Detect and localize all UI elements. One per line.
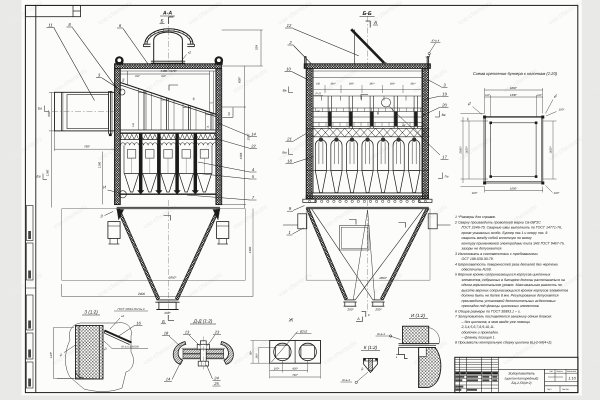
svg-text:х: х xyxy=(367,313,370,317)
svg-text:19: 19 xyxy=(442,92,447,97)
svg-text:– фланец позиция 1.: – фланец позиция 1. xyxy=(461,335,496,339)
svg-text:23: 23 xyxy=(214,330,220,335)
svg-text:ГОСТ 10519-78-П-Ь.З: ГОСТ 10519-78-П-Ь.З xyxy=(118,308,145,311)
svg-text:1160: 1160 xyxy=(97,161,101,168)
svg-text:100*: 100* xyxy=(554,191,561,195)
svg-text:А-А: А-А xyxy=(162,11,172,17)
svg-text:сварить между собой вплотную п: сварить между собой вплотную по всему xyxy=(462,236,532,240)
svg-text:16: 16 xyxy=(136,321,141,326)
svg-text:И: И xyxy=(103,185,106,190)
svg-text:2 Сварку производить проволоко: 2 Сварку производить проволокой марки Св… xyxy=(454,220,541,224)
svg-text:14: 14 xyxy=(166,377,171,382)
svg-text:1: 1 xyxy=(288,230,290,235)
svg-text:Лист: Лист xyxy=(547,388,552,391)
svg-text:1160: 1160 xyxy=(46,169,50,176)
svg-text:8 Произвести контрольную сборк: 8 Произвести контрольную сборку циклона … xyxy=(455,341,552,345)
svg-text:1650*: 1650* xyxy=(464,145,468,153)
svg-text:И (1:2): И (1:2) xyxy=(411,313,425,318)
svg-text:А: А xyxy=(356,317,360,321)
svg-text:кроме указанных особо. Бункер: кроме указанных особо. Бункер поз.1 и оп… xyxy=(462,231,548,235)
svg-text:элементов, собранных в батарею: элементов, собранных в батарею должны ра… xyxy=(462,278,565,282)
svg-text:400*: 400* xyxy=(292,367,298,370)
svg-text:280*: 280* xyxy=(134,75,141,78)
svg-text:обеспечить Rz50.: обеспечить Rz50. xyxy=(462,268,492,272)
svg-text:600*: 600* xyxy=(238,76,242,83)
svg-text:Листов: Листов xyxy=(562,388,570,391)
svg-text:Б-Б: Б-Б xyxy=(362,11,371,17)
svg-text:18: 18 xyxy=(287,159,292,164)
svg-text:оболочек и прокладок.: оболочек и прокладок. xyxy=(462,330,499,334)
svg-text:производить установкой дополни: производить установкой дополнительных ас… xyxy=(462,299,556,303)
svg-text:1850*: 1850* xyxy=(379,276,388,280)
svg-text:20: 20 xyxy=(441,103,447,108)
svg-text:З (1:2): З (1:2) xyxy=(84,310,98,315)
svg-text:100*: 100* xyxy=(559,108,566,112)
svg-text:21: 21 xyxy=(286,137,292,142)
svg-text:1402: 1402 xyxy=(248,246,252,253)
svg-text:200*: 200* xyxy=(346,308,354,312)
svg-text:190: 190 xyxy=(316,83,321,86)
svg-text:534: 534 xyxy=(254,45,258,50)
svg-text:10: 10 xyxy=(286,67,291,72)
svg-text:6 Общие размеры по ГОСТ 30893.: 6 Общие размеры по ГОСТ 30893.1 – s. xyxy=(455,309,521,313)
svg-text:280*: 280* xyxy=(160,75,167,78)
svg-text:200*: 200* xyxy=(374,308,382,312)
svg-text:Масштаб: Масштаб xyxy=(567,370,577,373)
svg-text:Ю-Ь.5-100/200: Ю-Ь.5-100/200 xyxy=(121,346,139,349)
svg-text:12: 12 xyxy=(287,23,292,28)
svg-text:1800*: 1800* xyxy=(510,86,518,90)
svg-text:Масса: Масса xyxy=(557,370,564,373)
svg-text:132: 132 xyxy=(132,122,135,127)
svg-text:22: 22 xyxy=(250,144,256,149)
svg-text:Ев: Ев xyxy=(38,107,42,111)
svg-text:200*: 200* xyxy=(163,311,171,315)
svg-text:Вв: Вв xyxy=(283,89,287,93)
svg-text:одном горизонтальном уровне. М: одном горизонтальном уровне. Максимальна… xyxy=(462,283,562,287)
svg-text:Ю-Ь.З: Ю-Ь.З xyxy=(377,333,385,336)
svg-text:54: 54 xyxy=(227,112,231,116)
svg-text:2567: 2567 xyxy=(247,133,251,141)
svg-text:ГОСТ 2246-70. Сварные швы выпо: ГОСТ 2246-70. Сварные швы выполнить по Г… xyxy=(462,226,562,230)
svg-text:2400: 2400 xyxy=(137,292,145,296)
svg-text:Ю-Ь.4: Ю-Ь.4 xyxy=(432,40,440,43)
svg-text:А: А xyxy=(373,20,377,25)
svg-text:100*: 100* xyxy=(472,191,479,195)
svg-text:Лит.: Лит. xyxy=(550,370,554,373)
svg-text:2580*: 2580* xyxy=(458,145,462,154)
svg-text:1650*: 1650* xyxy=(548,145,552,153)
svg-text:123*: 123* xyxy=(49,351,53,358)
svg-text:К (1:2): К (1:2) xyxy=(364,345,378,350)
svg-text:– без циклонов, в мом вводе уж: – без циклонов, в мом вводе уже помощи xyxy=(461,320,531,324)
svg-text:Б: Б xyxy=(161,19,164,24)
svg-text:1330*: 1330* xyxy=(510,93,518,97)
svg-text:1585: 1585 xyxy=(239,152,243,159)
svg-text:1600*: 1600* xyxy=(510,186,518,190)
svg-text:должна быть не более 8 мм. Рег: должна быть не более 8 мм. Регулирование… xyxy=(462,294,559,298)
svg-text:5 Верхние кромки соприкасающих: 5 Верхние кромки соприкасающихся корпусо… xyxy=(455,273,551,277)
svg-text:Схема крепления бункера к коло: Схема крепления бункера к колоннам (1:20… xyxy=(473,71,558,76)
svg-text:760*: 760* xyxy=(84,145,91,149)
svg-text:11: 11 xyxy=(48,23,52,28)
svg-text:контуру применяемой электродам: контуру применяемой электродами типа Э42… xyxy=(462,241,565,245)
svg-text:зазоры не допускаются.: зазоры не допускаются. xyxy=(461,247,503,251)
svg-text:3 Изготовить в соответствии с: 3 Изготовить в соответствии с требования… xyxy=(455,252,538,256)
svg-text:Ø252: Ø252 xyxy=(299,330,308,334)
svg-text:Ю-Ь.З: Ю-Ь.З xyxy=(342,379,350,382)
svg-text:160*: 160* xyxy=(274,367,280,370)
svg-text:Д-Д (1:2): Д-Д (1:2) xyxy=(193,319,213,324)
svg-text:13: 13 xyxy=(185,330,190,335)
svg-text:2,3,4,5,6,7,8,9,10,11.: 2,3,4,5,6,7,8,9,10,11. xyxy=(461,325,495,329)
svg-text:1:10: 1:10 xyxy=(568,377,576,381)
svg-text:24: 24 xyxy=(213,376,219,381)
svg-text:1850*: 1850* xyxy=(169,276,178,280)
svg-text:Вв: Вв xyxy=(442,113,446,117)
svg-text:Ж: Ж xyxy=(288,318,294,324)
svg-text:Ев: Ев xyxy=(36,175,40,179)
svg-text:Б: Б xyxy=(162,319,165,324)
svg-text:1 *Размеры для справок.: 1 *Размеры для справок. xyxy=(455,215,496,219)
svg-text:ОСТ 108.030.30-79.: ОСТ 108.030.30-79. xyxy=(462,257,494,261)
svg-text:7 Золоуловитель поставляется з: 7 Золоуловитель поставляется заказчику о… xyxy=(455,315,552,319)
svg-text:БЦ-2-5б(4+2): БЦ-2-5б(4+2) xyxy=(511,381,531,385)
svg-text:600*: 600* xyxy=(47,110,51,117)
svg-text:Золоуловитель: Золоуловитель xyxy=(508,372,535,376)
svg-text:14: 14 xyxy=(251,132,256,137)
svg-text:18: 18 xyxy=(164,331,169,336)
svg-text:(циклон батарейный): (циклон батарейный) xyxy=(505,376,539,380)
svg-text:25: 25 xyxy=(213,381,219,386)
svg-text:к2: к2 xyxy=(188,51,191,55)
svg-text:высоте верхних соприкасающихся: высоте верхних соприкасающихся кромок ко… xyxy=(462,288,569,292)
svg-text:4 Шероховатость поверхностей р: 4 Шероховатость поверхностей реза детале… xyxy=(455,262,558,266)
svg-text:17: 17 xyxy=(442,155,447,160)
svg-text:прокладок под фланцы циклонных: прокладок под фланцы циклонных элементов… xyxy=(462,304,540,308)
svg-text:760*: 760* xyxy=(292,374,298,377)
